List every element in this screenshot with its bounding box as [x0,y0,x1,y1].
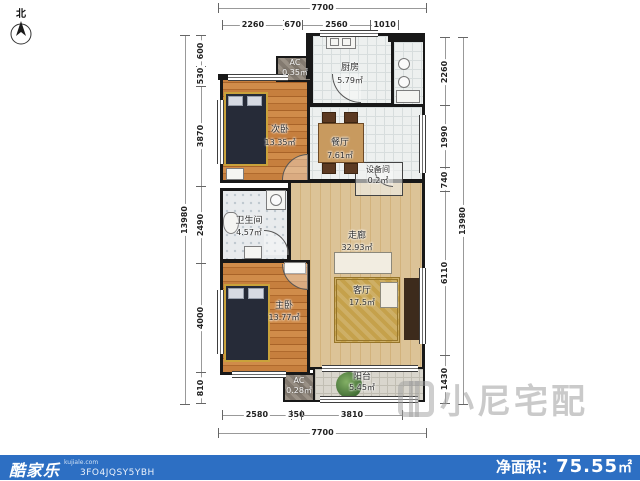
sofa [334,252,392,274]
dim-value: 7700 [309,4,335,12]
compass-north-label: 北 [8,5,34,20]
dimension-bottom-total: 7700 [218,428,427,438]
dim-value: 13980 [181,204,189,236]
bathroom-sink [244,246,262,259]
window [217,100,224,164]
dim-value: 7700 [309,429,335,437]
dim-segment: 2260 [440,37,450,105]
brand-domain: kujiale.com [64,459,98,466]
dim-value: 2490 [197,212,205,238]
dim-value: 2260 [240,21,266,29]
dimension-bottom-chain: 2580 350 3810 [222,410,403,420]
dim-segment: 530 [196,66,206,87]
stove-burner [398,58,410,70]
dim-value: 2580 [244,411,270,419]
dim-segment: 2580 [222,410,291,420]
area-equipment: 0.2㎡ [346,177,410,186]
dim-segment: 6110 [440,191,450,355]
area-ac-bottom: 0.28㎡ [267,387,331,396]
area-bedroom2: 13.35㎡ [248,139,312,148]
dim-value: 1010 [371,21,397,29]
label-equipment: 设备间 [346,166,410,175]
compass: 北 [8,5,34,50]
pillow [248,288,264,299]
dim-value: 4000 [197,305,205,331]
window [419,115,426,173]
sink-basin [342,38,351,46]
washer-drum [270,194,282,206]
dim-segment: 810 [196,372,206,404]
watermark-logo-icon [398,381,434,417]
watermark: 小尼宅配 [398,374,588,423]
label-balcony: 阳台 [330,373,394,383]
footer-bar: 酷家乐 kujiale.com 3FO4JQSY5YBH 净面积： 75.55 … [0,455,640,480]
brand-logo: 酷家乐 [9,457,60,481]
sink-basin [330,38,339,46]
dimension-left-chain: 600 530 3870 2490 4000 810 [196,35,206,404]
dim-value: 3870 [197,123,205,149]
dining-chair [322,112,336,123]
dim-value: 740 [441,169,449,190]
tv-cabinet [404,278,419,340]
fridge [396,90,420,103]
window [217,290,224,354]
dim-segment: 670 [283,20,302,30]
dimension-left-total: 13980 [180,35,190,405]
dining-chair [344,112,358,123]
dim-value: 6110 [441,260,449,286]
dimension-right-chain: 2260 1990 740 6110 1430 [440,37,450,404]
label-bathroom: 卫生间 [217,217,281,227]
floorplan-page: { "compass": { "label": "北" }, "rooms": … [0,0,640,480]
window [320,30,378,37]
pillow [247,96,262,106]
net-area-label: 净面积： [496,456,556,477]
dim-segment: 350 [291,410,301,420]
dim-segment: 4000 [196,263,206,371]
stove-burner [398,76,410,88]
area-living: 17.5㎡ [330,299,394,308]
dimension-top-chain: 2260 670 2560 1010 [222,20,399,30]
dim-value: 2560 [323,21,349,29]
dim-segment: 2260 [222,20,283,30]
plan-code: 3FO4JQSY5YBH [80,468,155,478]
area-dining: 7.61㎡ [308,152,372,161]
dim-value: 3810 [339,411,365,419]
dim-segment: 3870 [196,86,206,185]
label-bedroom1: 主卧 [252,302,316,312]
label-hall: 走廊 [325,232,389,242]
label-dining: 餐厅 [308,139,372,149]
window [419,268,426,344]
dim-value: 13980 [459,205,467,237]
net-area-value: 75.55 [556,456,618,477]
dresser-bedroom2 [226,168,244,180]
area-hall: 32.93㎡ [325,244,389,253]
dim-value: 810 [197,377,205,398]
pillow [228,288,244,299]
label-bedroom2: 次卧 [248,126,312,136]
sliding-door [322,365,418,372]
dim-segment: 600 [196,35,206,66]
watermark-text: 小尼宅配 [440,374,588,423]
pillow [228,96,243,106]
dim-segment: 1010 [370,20,398,30]
net-area-unit: ㎡ [618,457,632,477]
label-ac-bottom: AC [267,377,331,386]
dim-segment: 1990 [440,105,450,167]
dim-value: 2260 [441,58,449,84]
label-kitchen: 厨房 [318,64,382,74]
net-area: 净面积： 75.55 ㎡ [496,456,632,477]
dim-value: 600 [197,40,205,61]
dim-segment: 2560 [302,20,371,30]
area-bathroom: 4.57㎡ [217,229,281,238]
wall-segment [388,33,425,42]
area-kitchen: 5.79㎡ [318,77,382,86]
dining-chair [322,163,336,174]
dim-value: 1990 [441,124,449,150]
area-bedroom1: 13.77㎡ [252,314,316,323]
dimension-top-total: 7700 [218,3,427,13]
dim-segment: 740 [440,167,450,191]
dim-segment: 2490 [196,186,206,264]
area-balcony: 5.45㎡ [330,384,394,393]
dim-segment: 3810 [301,410,402,420]
compass-needle-icon [9,20,33,46]
dimension-right-total: 13980 [458,37,468,405]
dim-value: 670 [282,21,303,29]
dim-value: 530 [197,66,205,87]
label-living: 客厅 [330,287,394,297]
